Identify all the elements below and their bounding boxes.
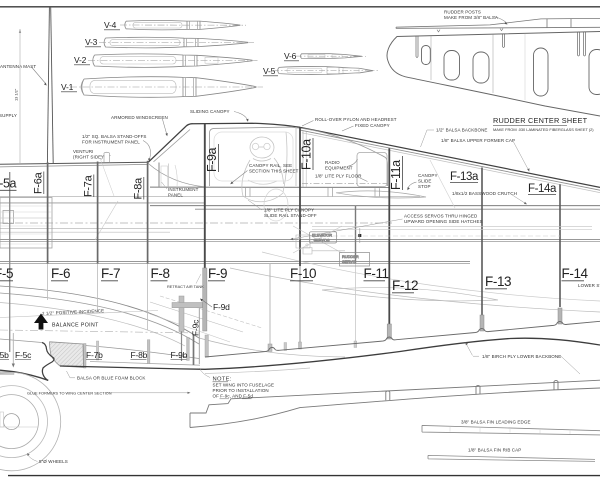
svg-text:3/8" BALSA FIN LEADING EDGE: 3/8" BALSA FIN LEADING EDGE (461, 420, 531, 425)
svg-text:INSTRUMENT: INSTRUMENT (168, 187, 199, 192)
svg-text:F-14a: F-14a (528, 183, 557, 195)
svg-text:SLIDING CANOPY: SLIDING CANOPY (190, 109, 230, 114)
svg-text:13 1/2": 13 1/2" (14, 88, 19, 101)
svg-text:(RIGHT SIDE): (RIGHT SIDE) (73, 155, 103, 160)
svg-text:F-6: F-6 (51, 266, 70, 281)
svg-text:F-7: F-7 (101, 266, 120, 281)
svg-text:MAKE FROM .030 LAMINATED FIBER: MAKE FROM .030 LAMINATED FIBERGLASS SHEE… (493, 127, 594, 132)
svg-text:1/2" SQ. BALSA STAND-OFFS: 1/2" SQ. BALSA STAND-OFFS (82, 134, 147, 139)
svg-text:CANOPY: CANOPY (418, 173, 438, 178)
svg-text:STOP: STOP (418, 184, 431, 189)
svg-text:ACCESS SERVOS THRU HINGED: ACCESS SERVOS THRU HINGED (404, 214, 478, 219)
svg-text:F-7a: F-7a (83, 174, 95, 197)
svg-text:F-10a: F-10a (300, 139, 314, 170)
svg-text:F-5: F-5 (0, 266, 13, 281)
svg-text:PANEL: PANEL (168, 193, 183, 198)
svg-text:F-8a: F-8a (133, 177, 145, 200)
svg-text:V-6: V-6 (284, 51, 297, 61)
svg-text:RADIO: RADIO (325, 160, 340, 165)
svg-text:F-13a: F-13a (450, 171, 479, 183)
svg-text:F-9: F-9 (208, 266, 227, 281)
svg-text:RUDDER POSTS: RUDDER POSTS (444, 10, 481, 15)
svg-text:BALSA OR BLUE FOAM BLOCK: BALSA OR BLUE FOAM BLOCK (77, 376, 145, 381)
svg-text:F-10: F-10 (290, 266, 316, 281)
svg-text:F-5c: F-5c (15, 350, 32, 360)
svg-text:1/8" BALSA FIN RIB CAP: 1/8" BALSA FIN RIB CAP (468, 448, 521, 453)
svg-text:GLUE FORMERS TO WING CENTER SE: GLUE FORMERS TO WING CENTER SECTION (27, 391, 112, 396)
svg-text:V-1: V-1 (61, 82, 74, 92)
svg-text:ARMORED WINDSCREEN: ARMORED WINDSCREEN (111, 115, 168, 120)
svg-text:BALANCE POINT: BALANCE POINT (52, 323, 99, 329)
svg-text:LOWER STAB: LOWER STAB (578, 283, 600, 288)
svg-text:FOR INSTRUMENT PANEL: FOR INSTRUMENT PANEL (82, 140, 140, 145)
svg-text:SERVOS: SERVOS (314, 238, 331, 243)
svg-text:1/2" BALSA BACKBONE: 1/2" BALSA BACKBONE (436, 128, 488, 133)
svg-text:F-5b: F-5b (0, 350, 9, 360)
svg-text:1/8x1/2 BASSWOOD CRUTCH: 1/8x1/2 BASSWOOD CRUTCH (452, 191, 517, 196)
svg-text:V-5: V-5 (263, 66, 276, 76)
svg-text:F-9c: F-9c (191, 319, 201, 336)
svg-text:F-5a: F-5a (0, 177, 17, 191)
svg-text:1/8" LITE PLY CANOPY: 1/8" LITE PLY CANOPY (264, 208, 314, 213)
svg-text:CANOPY RAIL, SEE: CANOPY RAIL, SEE (249, 163, 292, 168)
svg-text:F-8: F-8 (151, 266, 170, 281)
svg-text:MAKE FROM 3/8" BALSA: MAKE FROM 3/8" BALSA (444, 15, 498, 20)
svg-text:V-3: V-3 (85, 37, 98, 47)
svg-text:1/8" BALSA UPPER FORMER CAP: 1/8" BALSA UPPER FORMER CAP (441, 138, 515, 143)
svg-text:F-8b: F-8b (131, 350, 148, 360)
svg-text:PRIOR TO INSTALLATION: PRIOR TO INSTALLATION (213, 388, 269, 393)
svg-text:ANTENNA MAST: ANTENNA MAST (0, 64, 36, 69)
svg-text:OF F-9c, AND F-5d: OF F-9c, AND F-5d (213, 394, 254, 399)
svg-text:SLIDE RAIL STAND-OFF: SLIDE RAIL STAND-OFF (264, 213, 317, 218)
svg-text:F-9d: F-9d (213, 302, 230, 312)
svg-text:1/8" BIRCH PLY LOWER BACKBONE: 1/8" BIRCH PLY LOWER BACKBONE (482, 354, 561, 359)
svg-text:SET WING INTO FUSELAGE: SET WING INTO FUSELAGE (213, 383, 275, 388)
svg-text:SECTION THIS SHEET: SECTION THIS SHEET (249, 169, 299, 174)
svg-text:5"Ø WHEELS: 5"Ø WHEELS (39, 459, 68, 464)
svg-text:F-7b: F-7b (86, 350, 103, 360)
svg-text:F-9a: F-9a (205, 147, 219, 172)
svg-text:SERVO: SERVO (342, 259, 356, 264)
svg-text:FIXED CANOPY: FIXED CANOPY (355, 123, 390, 128)
svg-text:SUPPLY: SUPPLY (0, 113, 17, 118)
svg-text:F-11: F-11 (364, 266, 389, 281)
svg-text:F-11a: F-11a (389, 160, 403, 190)
svg-text:V-4: V-4 (104, 20, 117, 30)
svg-text:F-14: F-14 (562, 266, 589, 281)
svg-text:F-13: F-13 (485, 274, 511, 289)
svg-text:UPWARD OPENING SIDE HATCHES: UPWARD OPENING SIDE HATCHES (404, 219, 483, 224)
svg-text:V-2: V-2 (74, 55, 87, 65)
svg-text:1/8" LITE PLY FLOOR: 1/8" LITE PLY FLOOR (315, 174, 362, 179)
svg-text:RUDDER CENTER SHEET: RUDDER CENTER SHEET (493, 116, 588, 125)
svg-text:F-6a: F-6a (33, 171, 45, 194)
svg-text:SLIDE: SLIDE (418, 179, 432, 184)
svg-text:F-9b: F-9b (171, 350, 188, 360)
svg-text:VENTURI: VENTURI (73, 149, 93, 154)
svg-text:F-12: F-12 (392, 278, 418, 293)
svg-text:RETRACT AIR TANK: RETRACT AIR TANK (167, 284, 204, 289)
svg-text:ROLL-OVER PYLON AND HEADREST: ROLL-OVER PYLON AND HEADREST (315, 117, 397, 122)
